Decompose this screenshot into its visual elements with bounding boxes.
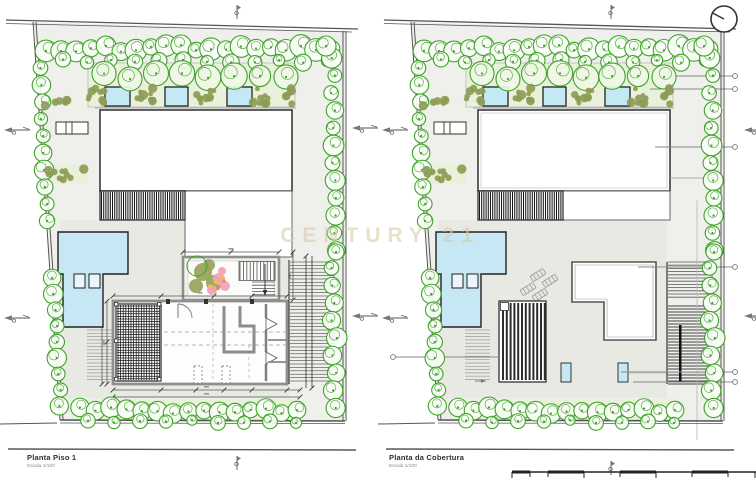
floor-plan-group [0,5,378,470]
scale-bar [500,462,756,478]
roof-plan-drawing [378,0,756,478]
drawing-sheet: CENTURY 21 Planta Piso 1 Escala 1/100 Pl… [0,0,756,478]
clock-icon [702,1,750,41]
floor-plan-drawing [0,0,378,478]
roof-plan-group [378,5,756,475]
